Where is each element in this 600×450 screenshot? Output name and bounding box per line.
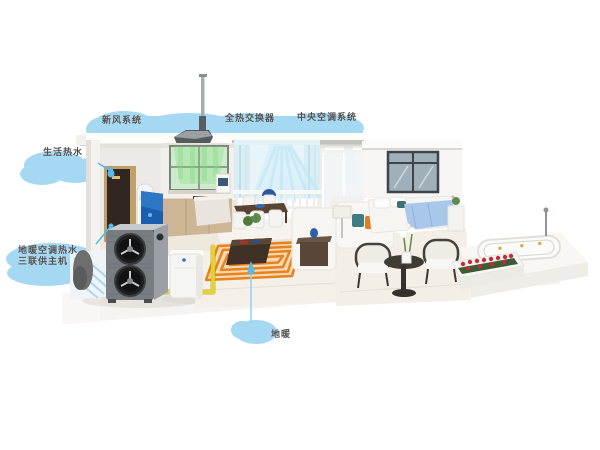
label-heat-pump-line2: 三联供主机 (18, 256, 78, 267)
label-fresh-air-system: 新风系统 (102, 115, 142, 126)
chimney (199, 74, 207, 138)
hydronic-indoor-unit (170, 250, 204, 298)
illustration-svg (0, 0, 600, 450)
ceiling-shadow (100, 144, 362, 148)
kitchen-appliance (216, 174, 230, 193)
label-floor-heating: 地暖 (271, 329, 291, 340)
label-heat-pump-unit: 地暖空调热水 三联供主机 (18, 245, 78, 267)
label-central-ac: 中央空调系统 (297, 112, 357, 123)
bath-faucet (544, 208, 549, 237)
heat-pump-outdoor-unit (106, 224, 168, 303)
label-heat-pump-line1: 地暖空调热水 (18, 245, 78, 256)
label-heat-exchanger: 全热交换器 (225, 113, 275, 124)
unit-logo (157, 234, 164, 241)
kitchen-island (194, 195, 231, 226)
scene-stage: 新风系统 全热交换器 中央空调系统 生活热水 地暖空调热水 三联供主机 地暖 (0, 0, 600, 450)
bedroom-wing (362, 141, 462, 198)
bedroom-window (388, 152, 438, 192)
fan-top (115, 234, 145, 264)
fan-bottom (115, 266, 145, 296)
bed (368, 196, 464, 234)
label-hot-water: 生活热水 (43, 147, 83, 158)
